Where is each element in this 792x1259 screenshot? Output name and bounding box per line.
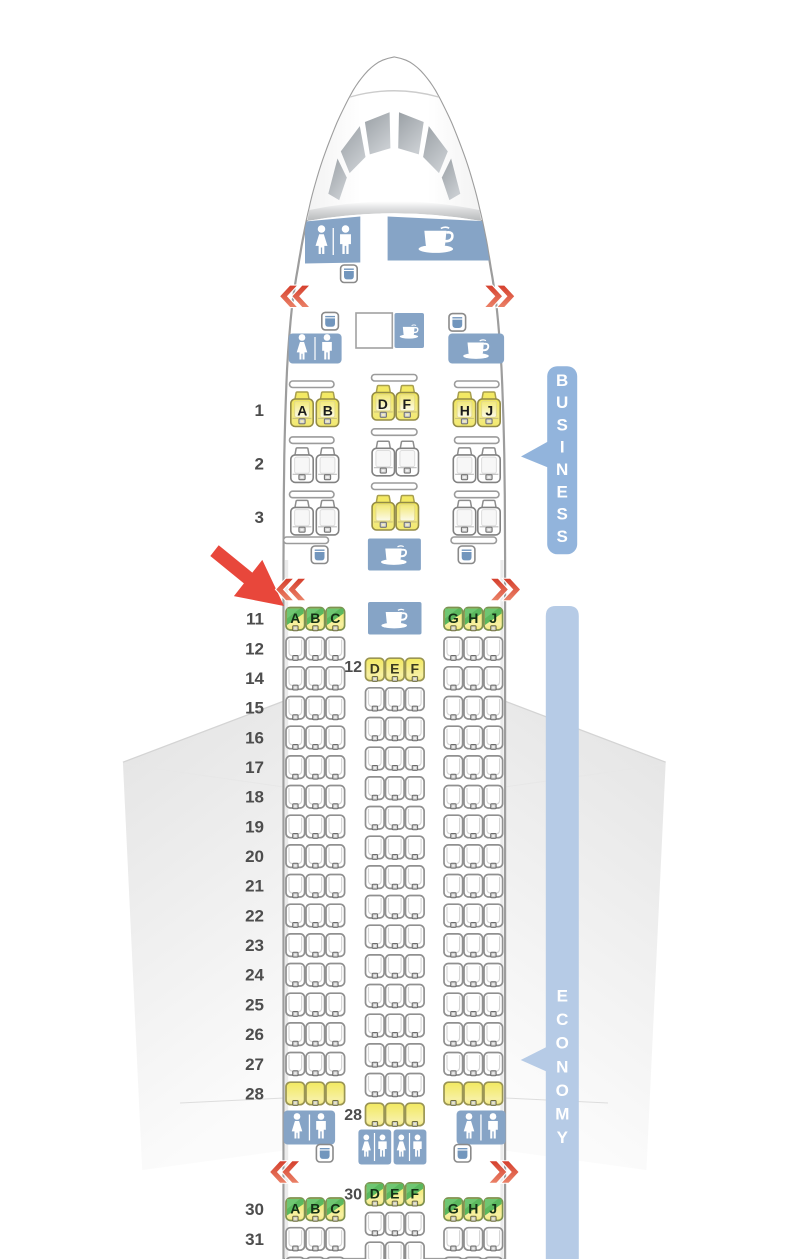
svg-text:B: B: [323, 403, 333, 419]
svg-text:16: 16: [245, 728, 264, 747]
svg-text:21: 21: [245, 877, 264, 896]
svg-text:A: A: [290, 1201, 300, 1217]
svg-text:E: E: [557, 482, 568, 501]
svg-text:Y: Y: [557, 1128, 569, 1147]
svg-text:S: S: [557, 527, 568, 546]
svg-text:O: O: [556, 1081, 569, 1100]
svg-text:28: 28: [245, 1084, 264, 1103]
svg-text:H: H: [468, 610, 478, 626]
svg-text:17: 17: [245, 758, 264, 777]
svg-text:30: 30: [344, 1187, 362, 1204]
svg-text:H: H: [460, 403, 470, 419]
svg-text:A: A: [290, 610, 300, 626]
svg-text:23: 23: [245, 936, 264, 955]
svg-text:B: B: [310, 610, 320, 626]
svg-text:D: D: [370, 1185, 380, 1201]
svg-text:F: F: [411, 1185, 420, 1201]
svg-text:G: G: [448, 610, 459, 626]
svg-text:N: N: [556, 460, 568, 479]
svg-text:C: C: [330, 1201, 340, 1217]
svg-text:1: 1: [255, 401, 264, 420]
svg-text:14: 14: [245, 669, 264, 688]
svg-text:22: 22: [245, 906, 264, 925]
svg-text:28: 28: [344, 1107, 362, 1124]
svg-text:D: D: [370, 661, 380, 677]
svg-text:C: C: [556, 1010, 568, 1029]
svg-text:J: J: [489, 1201, 497, 1217]
svg-text:J: J: [489, 610, 497, 626]
svg-text:S: S: [557, 415, 568, 434]
svg-text:27: 27: [245, 1055, 264, 1074]
svg-text:B: B: [310, 1201, 320, 1217]
svg-text:20: 20: [245, 847, 264, 866]
svg-text:M: M: [555, 1105, 569, 1124]
svg-text:J: J: [485, 403, 493, 419]
svg-text:E: E: [557, 987, 568, 1006]
svg-text:B: B: [556, 371, 568, 390]
svg-text:30: 30: [245, 1200, 264, 1219]
svg-text:U: U: [556, 393, 568, 412]
svg-text:19: 19: [245, 817, 264, 836]
svg-text:G: G: [448, 1201, 459, 1217]
svg-text:24: 24: [245, 966, 264, 985]
svg-text:F: F: [411, 661, 420, 677]
svg-text:3: 3: [255, 508, 264, 527]
svg-text:15: 15: [245, 699, 264, 718]
svg-text:25: 25: [245, 995, 264, 1014]
svg-text:26: 26: [245, 1025, 264, 1044]
svg-text:F: F: [403, 396, 412, 412]
svg-text:18: 18: [245, 788, 264, 807]
svg-text:11: 11: [246, 610, 264, 629]
svg-text:E: E: [390, 1185, 399, 1201]
svg-text:H: H: [468, 1201, 478, 1217]
svg-text:S: S: [557, 505, 568, 524]
svg-text:N: N: [556, 1057, 568, 1076]
svg-text:D: D: [378, 396, 388, 412]
svg-text:E: E: [390, 661, 399, 677]
svg-text:C: C: [330, 610, 340, 626]
svg-text:A: A: [297, 403, 307, 419]
svg-text:12: 12: [344, 659, 362, 676]
svg-text:I: I: [560, 438, 565, 457]
svg-text:31: 31: [245, 1230, 264, 1249]
svg-text:12: 12: [245, 639, 264, 658]
svg-text:O: O: [556, 1034, 569, 1053]
svg-text:2: 2: [255, 455, 264, 474]
